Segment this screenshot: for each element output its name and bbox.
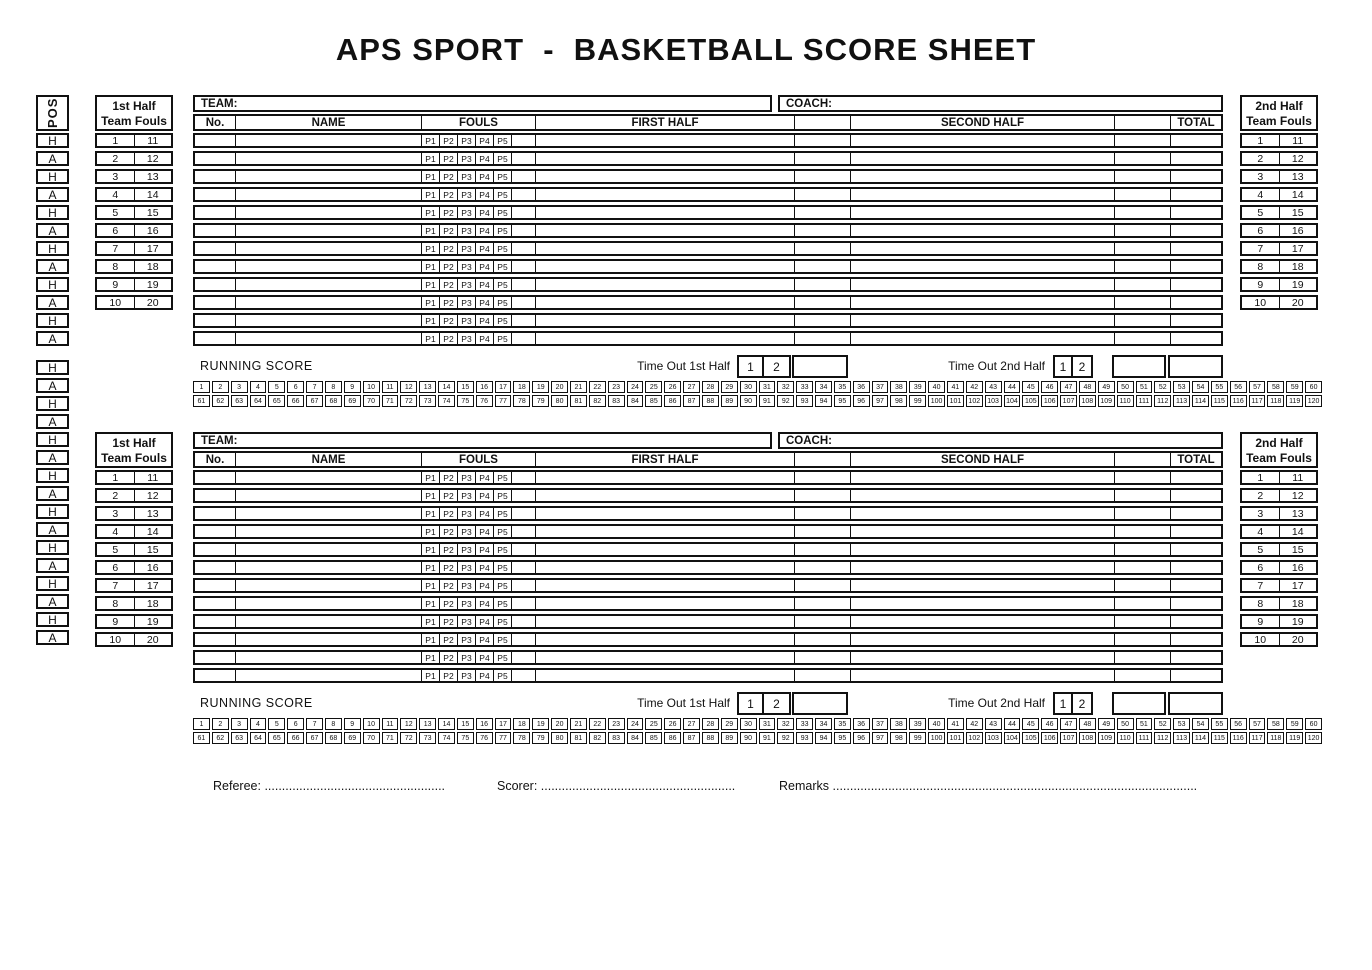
score-gap-cell xyxy=(794,472,850,483)
foul-period-cell: P1 xyxy=(421,297,439,308)
player-row: P1P2P3P4P5 xyxy=(193,632,1223,647)
foul-period-cell: P1 xyxy=(421,135,439,146)
running-score-number: 37 xyxy=(872,718,889,730)
foul-count-cell: 9 xyxy=(1242,279,1279,290)
foul-period-cell: P1 xyxy=(421,490,439,501)
score-gap-cell xyxy=(1114,297,1170,308)
first-half-score-cell xyxy=(535,315,794,326)
foul-count-cell: 8 xyxy=(1242,598,1279,609)
running-score-number: 45 xyxy=(1022,718,1039,730)
player-name-cell xyxy=(235,297,421,308)
foul-period-cell: P1 xyxy=(421,616,439,627)
foul-period-cell: P1 xyxy=(421,279,439,290)
running-score-number: 9 xyxy=(344,381,361,393)
first-half-score-cell xyxy=(535,598,794,609)
foul-period-cell: P5 xyxy=(493,544,511,555)
fouls-title-line: Team Fouls xyxy=(97,451,171,466)
foul-count-cell: 6 xyxy=(1242,225,1279,236)
second-half-score-cell xyxy=(850,544,1114,555)
running-score-number: 44 xyxy=(1004,381,1021,393)
timeout-box-group: 12 xyxy=(1053,355,1093,378)
foul-period-cell: P4 xyxy=(475,189,493,200)
second-half-score-cell xyxy=(850,490,1114,501)
foul-count-cell: 11 xyxy=(1279,472,1317,483)
score-gap-cell xyxy=(794,616,850,627)
first-half-score-cell xyxy=(535,634,794,645)
running-score-number: 107 xyxy=(1060,732,1077,744)
first-half-score-cell xyxy=(535,279,794,290)
foul-count-cell: 7 xyxy=(97,580,134,591)
pos-cell: H xyxy=(36,612,69,627)
running-score-number: 77 xyxy=(495,732,512,744)
running-score-number: 49 xyxy=(1098,718,1115,730)
running-score-number: 47 xyxy=(1060,381,1077,393)
player-row: P1P2P3P4P5 xyxy=(193,151,1223,166)
score-gap-cell xyxy=(1114,333,1170,344)
running-score-number: 61 xyxy=(193,732,210,744)
foul-extra-cell xyxy=(511,315,535,326)
running-score-number: 67 xyxy=(306,395,323,407)
player-number-cell xyxy=(195,670,235,681)
second-half-team-fouls-row: 818 xyxy=(1240,259,1318,274)
score-gap-cell xyxy=(794,562,850,573)
foul-extra-cell xyxy=(511,189,535,200)
player-number-cell xyxy=(195,261,235,272)
foul-period-cell: P3 xyxy=(457,333,475,344)
pos-cell: A xyxy=(36,378,69,393)
running-score-number: 107 xyxy=(1060,395,1077,407)
foul-period-cell: P3 xyxy=(457,135,475,146)
second-half-team-fouls-row: 212 xyxy=(1240,488,1318,503)
foul-count-cell: 12 xyxy=(134,153,172,164)
foul-period-cell: P3 xyxy=(457,225,475,236)
score-gap-cell xyxy=(1114,261,1170,272)
score-gap-cell xyxy=(1114,634,1170,645)
running-score-number: 111 xyxy=(1136,732,1153,744)
running-score-number: 112 xyxy=(1154,732,1171,744)
total-score-cell xyxy=(1170,598,1221,609)
foul-count-cell: 13 xyxy=(134,508,172,519)
second-half-team-fouls-header: 2nd HalfTeam Fouls xyxy=(1240,432,1318,468)
running-score-number: 27 xyxy=(683,718,700,730)
second-half-team-fouls-row: 515 xyxy=(1240,205,1318,220)
running-score-number: 84 xyxy=(627,732,644,744)
running-score-number: 96 xyxy=(853,732,870,744)
running-score-number: 22 xyxy=(589,718,606,730)
foul-extra-cell xyxy=(511,544,535,555)
running-score-box xyxy=(1168,692,1223,715)
second-half-team-fouls-row: 818 xyxy=(1240,596,1318,611)
running-score-number: 35 xyxy=(834,381,851,393)
player-row: P1P2P3P4P5 xyxy=(193,295,1223,310)
foul-count-cell: 15 xyxy=(134,207,172,218)
foul-period-cell: P2 xyxy=(439,171,457,182)
pos-cell: A xyxy=(36,187,69,202)
running-score-number: 105 xyxy=(1022,732,1039,744)
score-gap-cell xyxy=(794,634,850,645)
pos-cell: A xyxy=(36,630,69,645)
running-score-number: 94 xyxy=(815,395,832,407)
foul-count-cell: 20 xyxy=(134,634,172,645)
running-score-number: 26 xyxy=(664,381,681,393)
running-score-number: 61 xyxy=(193,395,210,407)
foul-count-cell: 13 xyxy=(1279,508,1317,519)
coach-label: COACH: xyxy=(786,435,832,447)
player-row: P1P2P3P4P5 xyxy=(193,470,1223,485)
running-score-number: 90 xyxy=(740,395,757,407)
player-name-cell xyxy=(235,490,421,501)
first-half-score-cell xyxy=(535,153,794,164)
foul-period-cell: P2 xyxy=(439,634,457,645)
pos-cell: H xyxy=(36,360,69,375)
foul-count-cell: 20 xyxy=(1279,297,1317,308)
player-name-cell xyxy=(235,315,421,326)
foul-period-cell: P1 xyxy=(421,207,439,218)
score-gap-cell xyxy=(1114,135,1170,146)
foul-extra-cell xyxy=(511,279,535,290)
foul-period-cell: P3 xyxy=(457,189,475,200)
player-name-cell xyxy=(235,598,421,609)
running-score-number: 78 xyxy=(513,732,530,744)
foul-period-cell: P4 xyxy=(475,634,493,645)
total-score-cell xyxy=(1170,544,1221,555)
player-number-cell xyxy=(195,580,235,591)
foul-count-cell: 8 xyxy=(97,598,134,609)
foul-period-cell: P5 xyxy=(493,279,511,290)
foul-count-cell: 19 xyxy=(134,616,172,627)
pos-cell: H xyxy=(36,504,69,519)
running-score-number: 114 xyxy=(1192,732,1209,744)
first-half-team-fouls-header: 1st HalfTeam Fouls xyxy=(95,95,173,131)
foul-period-cell: P4 xyxy=(475,616,493,627)
running-score-number: 85 xyxy=(645,395,662,407)
player-name-cell xyxy=(235,562,421,573)
foul-count-cell: 16 xyxy=(1279,562,1317,573)
foul-count-cell: 3 xyxy=(97,508,134,519)
first-half-team-fouls-row: 818 xyxy=(95,596,173,611)
running-score-number: 99 xyxy=(909,732,926,744)
player-name-cell xyxy=(235,670,421,681)
player-name-cell xyxy=(235,544,421,555)
total-score-cell xyxy=(1170,189,1221,200)
foul-period-cell: P4 xyxy=(475,279,493,290)
timeout-box: 2 xyxy=(1073,355,1093,378)
second-half-score-cell xyxy=(850,333,1114,344)
second-half-score-cell xyxy=(850,243,1114,254)
foul-count-cell: 9 xyxy=(97,616,134,627)
foul-period-cell: P2 xyxy=(439,526,457,537)
foul-count-cell: 10 xyxy=(97,297,134,308)
running-score-number: 83 xyxy=(608,395,625,407)
player-number-cell xyxy=(195,171,235,182)
foul-period-cell: P5 xyxy=(493,315,511,326)
second-half-team-fouls-row: 919 xyxy=(1240,614,1318,629)
player-row: P1P2P3P4P5 xyxy=(193,560,1223,575)
running-score-number: 15 xyxy=(457,718,474,730)
running-score-number: 102 xyxy=(966,395,983,407)
timeout-box: 1 xyxy=(737,692,764,715)
foul-period-cell: P4 xyxy=(475,243,493,254)
running-score-number: 54 xyxy=(1192,381,1209,393)
running-score-number: 38 xyxy=(890,718,907,730)
foul-period-cell: P1 xyxy=(421,598,439,609)
second-half-score-cell xyxy=(850,171,1114,182)
player-row: P1P2P3P4P5 xyxy=(193,668,1223,683)
pos-cell: A xyxy=(36,414,69,429)
foul-period-cell: P4 xyxy=(475,225,493,236)
running-score-number: 31 xyxy=(759,381,776,393)
player-row: P1P2P3P4P5 xyxy=(193,313,1223,328)
foul-count-cell: 9 xyxy=(97,279,134,290)
foul-period-cell: P1 xyxy=(421,670,439,681)
score-gap-cell xyxy=(794,333,850,344)
foul-period-cell: P2 xyxy=(439,652,457,663)
foul-period-cell: P5 xyxy=(493,634,511,645)
running-score-number: 6 xyxy=(287,718,304,730)
running-score-number: 57 xyxy=(1249,381,1266,393)
running-score-number: 52 xyxy=(1154,381,1171,393)
foul-count-cell: 18 xyxy=(1279,598,1317,609)
team-row-box: TEAM: xyxy=(193,95,772,112)
referee-item: Referee: ...............................… xyxy=(213,779,445,793)
fouls-title-line: 1st Half xyxy=(97,436,171,451)
col-gap xyxy=(1114,116,1170,129)
first-half-score-cell xyxy=(535,171,794,182)
foul-extra-cell xyxy=(511,526,535,537)
running-score-number: 52 xyxy=(1154,718,1171,730)
running-score-number: 95 xyxy=(834,732,851,744)
first-half-team-fouls-row: 111 xyxy=(95,470,173,485)
player-row: P1P2P3P4P5 xyxy=(193,259,1223,274)
running-score-number: 103 xyxy=(985,732,1002,744)
running-score-number: 19 xyxy=(532,381,549,393)
running-score-number: 8 xyxy=(325,718,342,730)
player-number-cell xyxy=(195,652,235,663)
second-half-team-fouls-row: 515 xyxy=(1240,542,1318,557)
foul-period-cell: P5 xyxy=(493,207,511,218)
foul-period-cell: P1 xyxy=(421,562,439,573)
total-score-cell xyxy=(1170,261,1221,272)
running-score-number: 29 xyxy=(721,718,738,730)
second-half-score-cell xyxy=(850,297,1114,308)
second-half-team-fouls-row: 111 xyxy=(1240,470,1318,485)
running-score-number: 119 xyxy=(1286,732,1303,744)
first-half-team-fouls-row: 919 xyxy=(95,277,173,292)
table-header-row: No.NAMEFOULSFIRST HALFSECOND HALFTOTAL xyxy=(193,451,1223,468)
running-score-number: 97 xyxy=(872,732,889,744)
pos-cell: H xyxy=(36,468,69,483)
running-score-number: 97 xyxy=(872,395,889,407)
first-half-team-fouls-row: 919 xyxy=(95,614,173,629)
player-row: P1P2P3P4P5 xyxy=(193,169,1223,184)
score-gap-cell xyxy=(794,490,850,501)
foul-period-cell: P3 xyxy=(457,207,475,218)
running-score-number: 89 xyxy=(721,395,738,407)
running-score-number: 86 xyxy=(664,395,681,407)
running-score-number: 5 xyxy=(268,718,285,730)
running-score-number: 37 xyxy=(872,381,889,393)
running-score-number: 2 xyxy=(212,718,229,730)
running-score-number: 59 xyxy=(1286,718,1303,730)
foul-extra-cell xyxy=(511,562,535,573)
running-score-number: 100 xyxy=(928,732,945,744)
total-score-cell xyxy=(1170,670,1221,681)
foul-count-cell: 5 xyxy=(97,544,134,555)
running-score-number: 30 xyxy=(740,718,757,730)
foul-period-cell: P4 xyxy=(475,297,493,308)
foul-period-cell: P3 xyxy=(457,598,475,609)
running-score-number: 81 xyxy=(570,395,587,407)
foul-extra-cell xyxy=(511,297,535,308)
running-score-number: 84 xyxy=(627,395,644,407)
first-half-team-fouls-row: 212 xyxy=(95,488,173,503)
timeout-box: 2 xyxy=(1073,692,1093,715)
foul-period-cell: P2 xyxy=(439,508,457,519)
running-score-number: 62 xyxy=(212,395,229,407)
running-score-number: 22 xyxy=(589,381,606,393)
col-gap xyxy=(1114,453,1170,466)
running-score-number: 42 xyxy=(966,718,983,730)
running-score-number: 21 xyxy=(570,718,587,730)
second-half-team-fouls-row: 313 xyxy=(1240,169,1318,184)
total-score-cell xyxy=(1170,580,1221,591)
foul-period-cell: P2 xyxy=(439,243,457,254)
remarks-item: Remarks ................................… xyxy=(779,779,1197,793)
foul-extra-cell xyxy=(511,490,535,501)
coach-row-box: COACH: xyxy=(778,95,1223,112)
foul-period-cell: P3 xyxy=(457,153,475,164)
foul-extra-cell xyxy=(511,171,535,182)
running-score-number: 57 xyxy=(1249,718,1266,730)
player-number-cell xyxy=(195,616,235,627)
second-half-score-cell xyxy=(850,207,1114,218)
score-gap-cell xyxy=(1114,225,1170,236)
foul-count-cell: 8 xyxy=(97,261,134,272)
foul-period-cell: P2 xyxy=(439,189,457,200)
score-gap-cell xyxy=(794,544,850,555)
running-score-number: 69 xyxy=(344,732,361,744)
foul-period-cell: P3 xyxy=(457,490,475,501)
running-score-number: 12 xyxy=(400,718,417,730)
foul-count-cell: 3 xyxy=(1242,171,1279,182)
foul-count-cell: 20 xyxy=(134,297,172,308)
pos-cell: A xyxy=(36,295,69,310)
foul-period-cell: P3 xyxy=(457,544,475,555)
running-score-number: 113 xyxy=(1173,732,1190,744)
player-number-cell xyxy=(195,207,235,218)
fouls-title-line: Team Fouls xyxy=(1242,451,1316,466)
first-half-team-fouls-row: 212 xyxy=(95,151,173,166)
fouls-title-line: Team Fouls xyxy=(1242,114,1316,129)
score-gap-cell xyxy=(794,580,850,591)
running-score-number: 105 xyxy=(1022,395,1039,407)
foul-period-cell: P3 xyxy=(457,243,475,254)
foul-period-cell: P2 xyxy=(439,616,457,627)
foul-period-cell: P1 xyxy=(421,171,439,182)
running-score-number: 45 xyxy=(1022,381,1039,393)
score-gap-cell xyxy=(1114,490,1170,501)
foul-period-cell: P4 xyxy=(475,598,493,609)
first-half-score-cell xyxy=(535,526,794,537)
foul-period-cell: P3 xyxy=(457,580,475,591)
running-score-number: 43 xyxy=(985,718,1002,730)
running-score-number: 110 xyxy=(1117,395,1134,407)
running-score-number: 60 xyxy=(1305,381,1322,393)
running-score-number: 93 xyxy=(796,732,813,744)
foul-period-cell: P2 xyxy=(439,135,457,146)
player-row: P1P2P3P4P5 xyxy=(193,187,1223,202)
running-score-number: 93 xyxy=(796,395,813,407)
total-score-cell xyxy=(1170,508,1221,519)
second-half-team-fouls-row: 414 xyxy=(1240,187,1318,202)
running-score-number: 85 xyxy=(645,732,662,744)
score-gap-cell xyxy=(794,670,850,681)
running-score-number: 34 xyxy=(815,718,832,730)
foul-count-cell: 2 xyxy=(97,490,134,501)
foul-count-cell: 11 xyxy=(134,135,172,146)
running-score-number: 20 xyxy=(551,381,568,393)
player-name-cell xyxy=(235,243,421,254)
foul-extra-cell xyxy=(511,670,535,681)
second-half-score-cell xyxy=(850,526,1114,537)
fouls-title-line: 2nd Half xyxy=(1242,99,1316,114)
running-score-number: 9 xyxy=(344,718,361,730)
running-score-number: 69 xyxy=(344,395,361,407)
running-score-number: 117 xyxy=(1249,395,1266,407)
foul-period-cell: P2 xyxy=(439,562,457,573)
foul-count-cell: 4 xyxy=(97,189,134,200)
pos-cell: A xyxy=(36,450,69,465)
player-name-cell xyxy=(235,472,421,483)
player-number-cell xyxy=(195,135,235,146)
running-score-number: 42 xyxy=(966,381,983,393)
running-score-number: 65 xyxy=(268,732,285,744)
running-score-box xyxy=(1112,692,1166,715)
foul-period-cell: P2 xyxy=(439,333,457,344)
player-row: P1P2P3P4P5 xyxy=(193,488,1223,503)
foul-count-cell: 6 xyxy=(97,562,134,573)
score-gap-cell xyxy=(794,189,850,200)
running-score-number: 23 xyxy=(608,718,625,730)
first-half-team-fouls-row: 414 xyxy=(95,187,173,202)
running-score-number: 72 xyxy=(400,395,417,407)
foul-period-cell: P4 xyxy=(475,544,493,555)
player-name-cell xyxy=(235,652,421,663)
player-name-cell xyxy=(235,135,421,146)
running-score-number: 21 xyxy=(570,381,587,393)
running-score-numbers: 1234567891011121314151617181920212223242… xyxy=(193,381,1322,407)
running-score-number: 46 xyxy=(1041,381,1058,393)
foul-extra-cell xyxy=(511,135,535,146)
running-score-number: 16 xyxy=(476,718,493,730)
foul-period-cell: P4 xyxy=(475,153,493,164)
foul-period-cell: P4 xyxy=(475,171,493,182)
running-score-number: 15 xyxy=(457,381,474,393)
player-row: P1P2P3P4P5 xyxy=(193,506,1223,521)
running-score-number: 43 xyxy=(985,381,1002,393)
foul-period-cell: P3 xyxy=(457,634,475,645)
col-no: No. xyxy=(195,116,235,129)
running-score-number: 29 xyxy=(721,381,738,393)
running-score-number: 87 xyxy=(683,395,700,407)
foul-count-cell: 17 xyxy=(134,580,172,591)
timeout-first-half-label: Time Out 1st Half xyxy=(533,359,730,373)
running-score-number: 16 xyxy=(476,381,493,393)
foul-count-cell: 7 xyxy=(1242,580,1279,591)
running-score-number: 58 xyxy=(1267,718,1284,730)
running-score-number: 11 xyxy=(382,381,399,393)
player-number-cell xyxy=(195,562,235,573)
